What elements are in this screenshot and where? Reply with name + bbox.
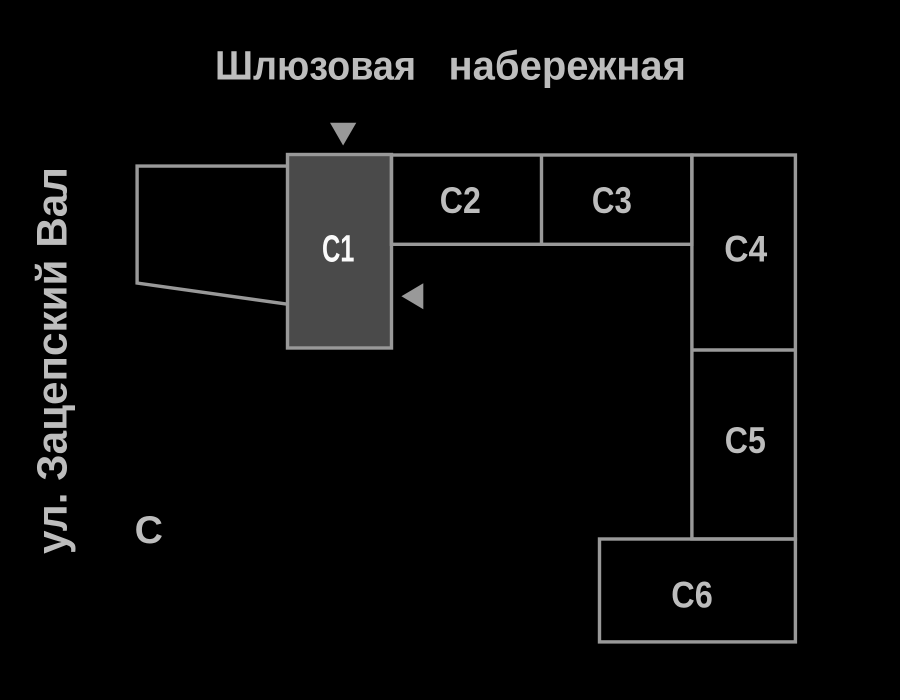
svg-text:С4: С4 — [724, 229, 768, 270]
svg-text:Шлюзовая: Шлюзовая — [215, 43, 416, 89]
svg-text:С: С — [135, 509, 163, 552]
svg-text:С3: С3 — [592, 180, 632, 221]
svg-text:С5: С5 — [725, 420, 766, 461]
svg-text:ул. Зацепский Вал: ул. Зацепский Вал — [29, 167, 76, 554]
svg-text:С6: С6 — [671, 575, 713, 616]
svg-text:С1: С1 — [322, 229, 355, 271]
svg-text:С2: С2 — [440, 180, 481, 221]
svg-text:набережная: набережная — [449, 43, 687, 89]
